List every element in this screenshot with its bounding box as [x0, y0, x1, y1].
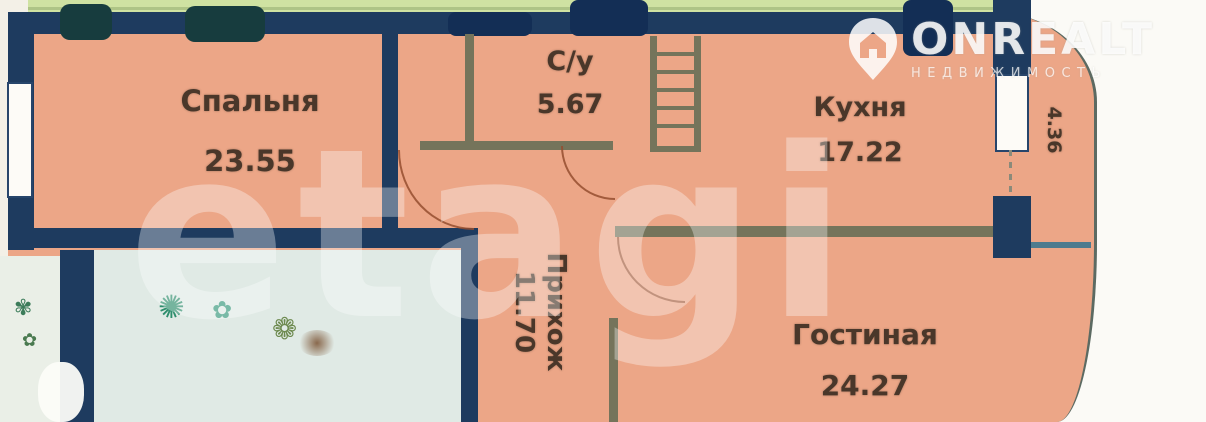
wall-pier [570, 0, 648, 36]
balcony-divider [1031, 242, 1091, 248]
wall-pier [448, 12, 532, 36]
bathroom-name: С/у [546, 46, 593, 77]
living-area: 24.27 [821, 369, 910, 402]
onrealt-subtitle-text: НЕДВИЖИМОСТЬ [911, 66, 1155, 81]
wall-kitchen-right [993, 196, 1031, 258]
house-pin-icon [845, 16, 901, 86]
bedroom-window [7, 82, 33, 198]
room-label-balcony: 4.36 [1041, 85, 1065, 175]
vent-shaft-rung [650, 70, 701, 74]
white-blob [38, 362, 84, 422]
balcony-area: 4.36 [1043, 107, 1065, 154]
etagi-watermark: etagi [128, 118, 857, 353]
plant-decor-icon: ✿ [22, 330, 37, 351]
onrealt-watermark: ONREALT НЕДВИЖИМОСТЬ [845, 16, 1155, 86]
floorplan-image: ✺ ✿ ❁ ✾ ✿ Спальня 23.55 С/у 5.67 Кухня 1… [0, 0, 1206, 422]
adjacent-area-line [28, 7, 1005, 10]
plant-decor-icon: ✾ [14, 296, 32, 321]
vent-shaft-rung [650, 52, 701, 56]
wall-pier [60, 4, 112, 40]
vent-shaft-rung [650, 88, 701, 92]
opening-dashed-line [1009, 150, 1012, 196]
onrealt-brand-text: ONREALT [911, 16, 1155, 64]
wall-pier [185, 6, 265, 42]
